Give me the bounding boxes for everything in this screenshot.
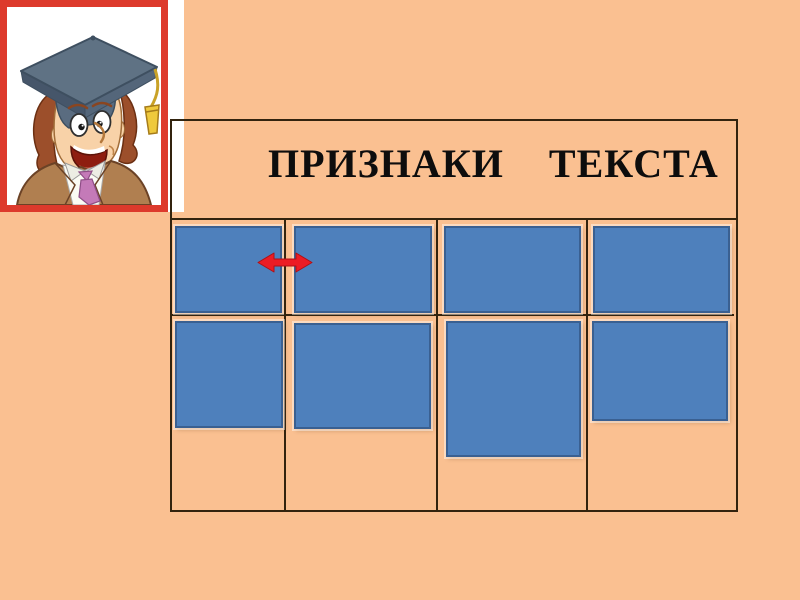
table-header-row: ПРИЗНАКИ ТЕКСТА	[172, 121, 736, 220]
graduate-boy-icon	[7, 7, 161, 205]
red-photo-frame	[0, 0, 168, 212]
left-right-arrow-icon	[257, 252, 313, 273]
cover-card-r1c3[interactable]	[444, 226, 581, 313]
graduate-boy-picture	[0, 0, 184, 212]
cover-card-r2c2[interactable]	[294, 323, 431, 429]
table-cell-r2c2	[286, 316, 438, 510]
table-cell-r1c3	[438, 220, 588, 316]
cover-card-r1c2[interactable]	[294, 226, 432, 313]
table-cell-r2c4	[588, 316, 734, 510]
cover-card-r2c4[interactable]	[592, 321, 728, 421]
slide-background: { "slide": { "background_color": "#FAC09…	[0, 0, 800, 600]
page-title: ПРИЗНАКИ ТЕКСТА	[268, 140, 719, 187]
table-cell-r1c4	[588, 220, 734, 316]
table-cell-r2c3	[438, 316, 588, 510]
features-table: ПРИЗНАКИ ТЕКСТА	[170, 119, 738, 512]
cover-card-r2c1[interactable]	[175, 321, 283, 428]
cover-card-r1c4[interactable]	[593, 226, 730, 313]
cover-card-r2c3[interactable]	[446, 321, 581, 457]
table-cell-r2c1	[172, 316, 286, 510]
